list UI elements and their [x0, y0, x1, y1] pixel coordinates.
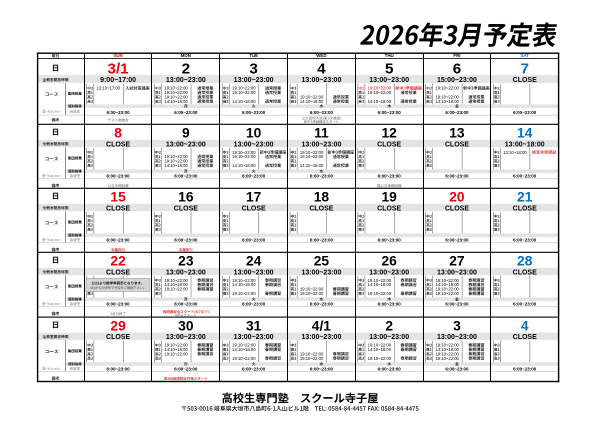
svg-text:2: 2: [385, 319, 393, 334]
svg-text:6:00~23:00: 6:00~23:00: [107, 110, 131, 115]
svg-text:19:10~22:00: 19:10~22:00: [368, 356, 392, 361]
svg-text:CLOSE: CLOSE: [106, 141, 130, 148]
svg-text:4/1: 4/1: [312, 319, 332, 334]
svg-text:CLOSE: CLOSE: [106, 334, 130, 341]
svg-text:13:00~18:00: 13:00~18:00: [505, 141, 545, 148]
svg-text:3: 3: [453, 319, 461, 334]
svg-text:6:00~23:00: 6:00~23:00: [242, 366, 266, 371]
svg-text:14:10~18:00: 14:10~18:00: [435, 99, 459, 104]
svg-text:6:00~23:00: 6:00~23:00: [174, 174, 198, 179]
svg-text:8: 8: [114, 126, 122, 141]
svg-text:19:10~22:00: 19:10~22:00: [300, 154, 324, 159]
svg-text:21: 21: [517, 190, 533, 205]
svg-text:19:10~22:00: 19:10~22:00: [232, 356, 256, 361]
svg-text:23: 23: [178, 254, 194, 269]
svg-text:29: 29: [110, 319, 126, 334]
svg-text:6:00~23:00: 6:00~23:00: [242, 238, 266, 243]
svg-text:14:10~18:00: 14:10~18:00: [368, 99, 392, 104]
svg-text:CLOSE: CLOSE: [513, 77, 537, 84]
svg-text:14:10~18:00: 14:10~18:00: [300, 99, 324, 104]
svg-text:6:00~23:00: 6:00~23:00: [378, 302, 402, 307]
svg-text:22: 22: [110, 254, 126, 269]
svg-text:14:10~18:00: 14:10~18:00: [164, 99, 188, 104]
svg-text:13:00~23:00: 13:00~23:00: [234, 269, 274, 276]
svg-text:14:10~18:00: 14:10~18:00: [368, 347, 392, 352]
svg-text:14:10~18:00: 14:10~18:00: [232, 282, 256, 287]
svg-text:CLOSE: CLOSE: [242, 205, 266, 212]
svg-text:CLOSE: CLOSE: [309, 205, 333, 212]
svg-text:19:10~22:00: 19:10~22:00: [232, 90, 256, 95]
svg-text:CLOSE: CLOSE: [106, 205, 130, 212]
svg-text:2: 2: [182, 61, 190, 78]
svg-text:4: 4: [521, 319, 529, 334]
svg-text:14: 14: [517, 126, 533, 141]
svg-text:17: 17: [246, 190, 262, 205]
svg-text:19:10~22:00: 19:10~22:00: [300, 291, 324, 296]
svg-text:13:00~23:00: 13:00~23:00: [234, 141, 274, 148]
svg-text:26: 26: [381, 254, 397, 269]
svg-text:13:00~23:00: 13:00~23:00: [301, 77, 341, 84]
svg-text:6:00~23:00: 6:00~23:00: [310, 302, 334, 307]
svg-text:6:00~23:00: 6:00~23:00: [513, 302, 537, 307]
svg-text:19: 19: [381, 190, 397, 205]
svg-text:13:00~23:00: 13:00~23:00: [437, 334, 477, 341]
svg-text:6:00~23:00: 6:00~23:00: [378, 366, 402, 371]
svg-text:6: 6: [453, 61, 461, 78]
svg-text:6:00~23:00: 6:00~23:00: [445, 238, 469, 243]
svg-text:13:10~18:00: 13:10~18:00: [503, 150, 527, 155]
svg-text:6:00~23:00: 6:00~23:00: [107, 302, 131, 307]
svg-text:12: 12: [381, 126, 397, 141]
svg-text:CLOSE: CLOSE: [513, 269, 537, 276]
svg-text:13:00~23:00: 13:00~23:00: [166, 141, 206, 148]
svg-text:6:00~23:00: 6:00~23:00: [174, 238, 198, 243]
svg-text:6:00~23:00: 6:00~23:00: [310, 110, 334, 115]
svg-text:6:00~23:00: 6:00~23:00: [242, 174, 266, 179]
svg-text:13:00~23:00: 13:00~23:00: [234, 334, 274, 341]
svg-text:CLOSE: CLOSE: [106, 269, 130, 276]
svg-text:13:00~23:00: 13:00~23:00: [369, 269, 409, 276]
svg-text:16: 16: [178, 190, 194, 205]
svg-text:6:00~23:00: 6:00~23:00: [107, 366, 131, 371]
svg-text:15:00~23:00: 15:00~23:00: [437, 77, 477, 84]
svg-text:14:10~18:00: 14:10~18:00: [232, 99, 256, 104]
svg-text:31: 31: [246, 319, 262, 334]
svg-text:6:00~23:00: 6:00~23:00: [107, 174, 131, 179]
svg-text:13:00~23:00: 13:00~23:00: [369, 77, 409, 84]
svg-text:6:00~23:00: 6:00~23:00: [310, 174, 334, 179]
svg-text:13:00~23:00: 13:00~23:00: [166, 269, 206, 276]
svg-text:6:00~23:00: 6:00~23:00: [445, 110, 469, 115]
svg-text:CLOSE: CLOSE: [174, 205, 198, 212]
svg-text:30: 30: [178, 319, 194, 334]
svg-text:19:10~22:00: 19:10~22:00: [300, 356, 324, 361]
svg-text:6:00~23:00: 6:00~23:00: [445, 302, 469, 307]
svg-text:CLOSE: CLOSE: [513, 334, 537, 341]
svg-text:13:00~23:00: 13:00~23:00: [301, 334, 341, 341]
svg-text:28: 28: [517, 254, 533, 269]
svg-text:19:10~22:00: 19:10~22:00: [164, 351, 188, 356]
svg-text:10: 10: [246, 126, 262, 141]
svg-text:13:00~23:00: 13:00~23:00: [166, 334, 206, 341]
svg-text:27: 27: [449, 254, 465, 269]
svg-text:14:10~18:00: 14:10~18:00: [300, 163, 324, 168]
svg-text:13:00~23:00: 13:00~23:00: [166, 77, 206, 84]
svg-text:15: 15: [110, 190, 126, 205]
svg-text:CLOSE: CLOSE: [377, 205, 401, 212]
svg-text:6:00~23:00: 6:00~23:00: [107, 238, 131, 243]
svg-text:7: 7: [520, 61, 528, 78]
svg-text:CLOSE: CLOSE: [377, 141, 401, 148]
svg-text:13:00~23:00: 13:00~23:00: [301, 141, 341, 148]
svg-text:14:10~18:00: 14:10~18:00: [232, 163, 256, 168]
svg-text:4: 4: [317, 61, 326, 78]
svg-text:19:10~22:00: 19:10~22:00: [164, 287, 188, 292]
svg-text:14:10~18:00: 14:10~18:00: [368, 282, 392, 287]
svg-text:11: 11: [314, 126, 329, 141]
svg-text:25: 25: [314, 254, 330, 269]
svg-text:13:00~23:00: 13:00~23:00: [234, 77, 274, 84]
svg-text:19:10~22:00: 19:10~22:00: [435, 86, 459, 91]
svg-text:6:00~23:00: 6:00~23:00: [310, 366, 334, 371]
svg-text:6:00~23:00: 6:00~23:00: [513, 174, 537, 179]
svg-text:24: 24: [246, 254, 262, 269]
svg-text:13: 13: [449, 126, 465, 141]
svg-text:19:10~22:00: 19:10~22:00: [368, 90, 392, 95]
svg-text:19:10~22:00: 19:10~22:00: [232, 291, 256, 296]
svg-text:6:00~23:00: 6:00~23:00: [242, 302, 266, 307]
svg-text:13:00~23:00: 13:00~23:00: [301, 269, 341, 276]
svg-text:19:10~22:00: 19:10~22:00: [368, 291, 392, 296]
svg-text:6:00~23:00: 6:00~23:00: [174, 110, 198, 115]
svg-text:6:00~23:00: 6:00~23:00: [445, 174, 469, 179]
svg-text:13:00~23:00: 13:00~23:00: [437, 269, 477, 276]
svg-text:6:00~23:00: 6:00~23:00: [378, 110, 402, 115]
svg-text:5: 5: [385, 61, 394, 78]
svg-text:13:10~17:00: 13:10~17:00: [97, 86, 121, 91]
svg-text:6:00~23:00: 6:00~23:00: [242, 110, 266, 115]
svg-text:9: 9: [182, 126, 190, 141]
svg-text:3: 3: [249, 61, 257, 78]
svg-text:18: 18: [314, 190, 330, 205]
svg-text:20: 20: [449, 190, 465, 205]
svg-text:13:00~23:00: 13:00~23:00: [369, 334, 409, 341]
svg-text:CLOSE: CLOSE: [445, 141, 469, 148]
svg-text:6:00~23:00: 6:00~23:00: [513, 366, 537, 371]
svg-text:19:10~22:00: 19:10~22:00: [232, 154, 256, 159]
svg-text:6:00~23:00: 6:00~23:00: [174, 302, 198, 307]
svg-text:19:10~22:00: 19:10~22:00: [435, 291, 459, 296]
svg-text:6:00~23:00: 6:00~23:00: [513, 110, 537, 115]
svg-text:9:00~17:00: 9:00~17:00: [100, 77, 136, 84]
svg-text:6:00~23:00: 6:00~23:00: [174, 366, 198, 371]
svg-text:6:00~23:00: 6:00~23:00: [445, 366, 469, 371]
svg-text:6:00~23:00: 6:00~23:00: [513, 238, 537, 243]
svg-text:CLOSE: CLOSE: [513, 205, 537, 212]
svg-text:3/1: 3/1: [108, 61, 130, 78]
svg-text:14:10~18:00: 14:10~18:00: [164, 163, 188, 168]
svg-text:6:00~23:00: 6:00~23:00: [378, 174, 402, 179]
svg-text:19:10~22:00: 19:10~22:00: [435, 356, 459, 361]
svg-text:6:00~23:00: 6:00~23:00: [310, 238, 334, 243]
svg-text:14:10~18:00: 14:10~18:00: [232, 347, 256, 352]
svg-text:CLOSE: CLOSE: [445, 205, 469, 212]
svg-text:6:00~23:00: 6:00~23:00: [378, 238, 402, 243]
